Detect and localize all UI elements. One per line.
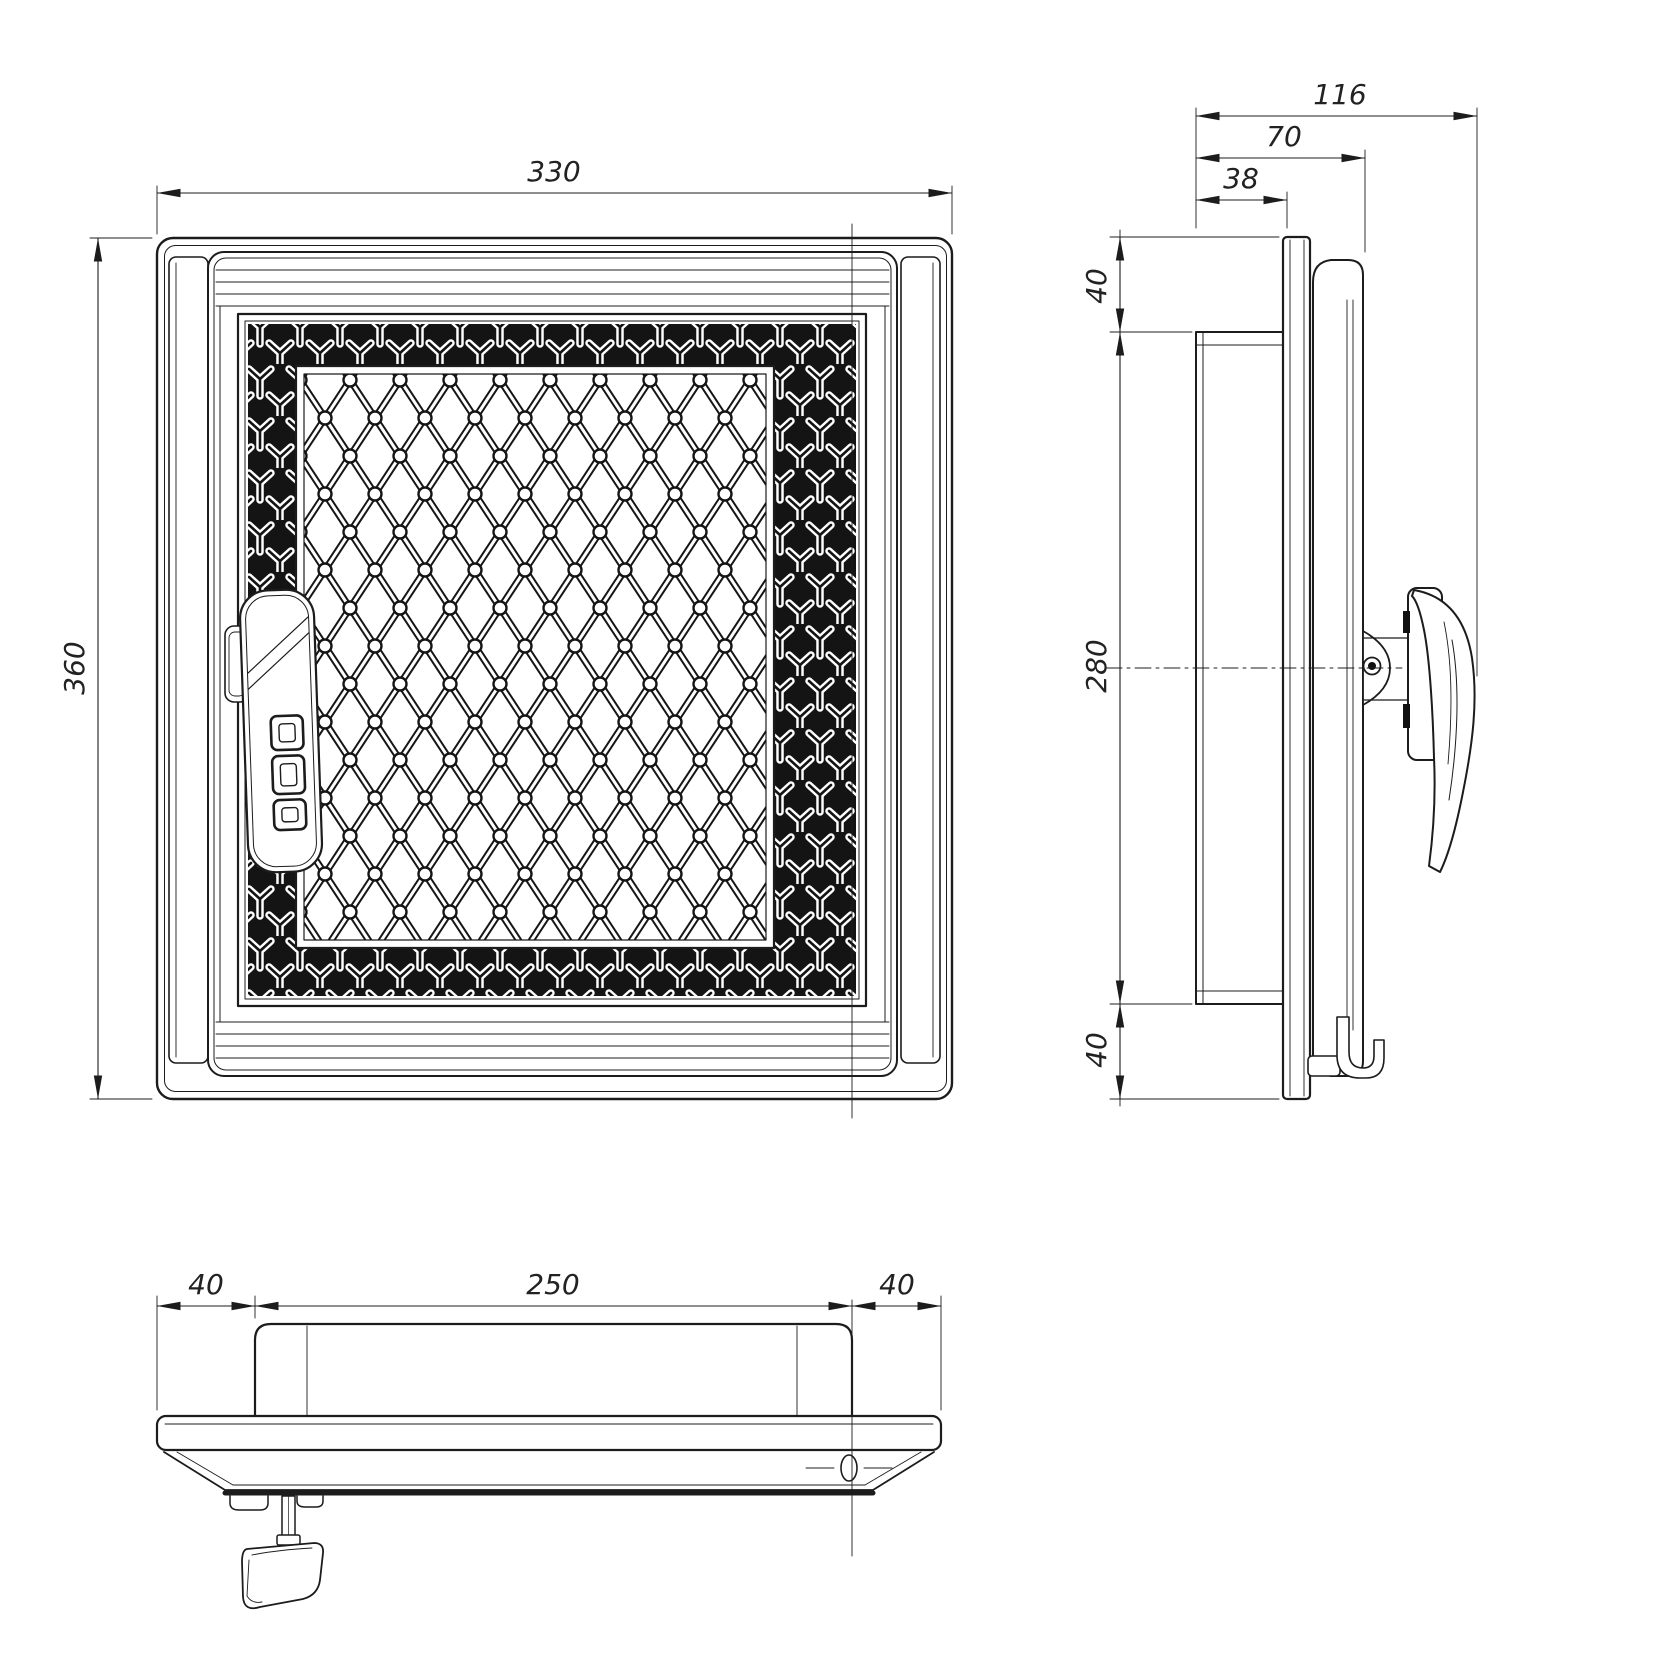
dim-side-total-depth-label: 116	[1313, 78, 1366, 111]
left-flange-strip	[169, 257, 208, 1063]
bottom-duct-box	[255, 1324, 852, 1416]
dim-side-door-depth: 70	[1196, 120, 1365, 252]
dim-side-door-depth-label: 70	[1266, 120, 1302, 153]
dim-bottom-chain: 40 250 40	[157, 1268, 941, 1410]
drawing-sheet: 330 360	[0, 0, 1680, 1680]
bottom-door-leaf	[164, 1452, 934, 1493]
dim-side-opening-height-label: 280	[1080, 639, 1113, 692]
dim-front-width: 330	[157, 155, 952, 234]
side-view: 116 70 38 40 280 40	[1080, 78, 1477, 1106]
side-handle	[1403, 588, 1475, 872]
lattice-panel	[304, 374, 766, 940]
bottom-front-plate	[157, 1416, 941, 1450]
side-clamp-bracket	[1308, 1017, 1384, 1078]
dim-bottom-opening-width-label: 250	[526, 1268, 579, 1301]
latch-feet	[230, 1496, 323, 1510]
dim-side-frame-depth: 38	[1196, 162, 1287, 228]
dim-side-frame-depth-label: 38	[1223, 162, 1259, 195]
dim-side-bottom-offset-label: 40	[1080, 1032, 1113, 1068]
dim-bottom-left-offset-label: 40	[188, 1268, 224, 1301]
technical-drawing: 330 360	[0, 0, 1680, 1680]
dim-front-width-label: 330	[527, 155, 580, 188]
dim-front-height-label: 360	[58, 641, 91, 694]
right-flange-strip	[901, 257, 940, 1063]
bottom-view: 40 250 40	[157, 1268, 941, 1608]
dim-side-top-offset-label: 40	[1080, 268, 1113, 304]
door-handle-front	[239, 589, 323, 873]
front-view: 330 360	[58, 155, 952, 1118]
dim-front-height: 360	[58, 238, 152, 1099]
handle-knob	[242, 1543, 323, 1608]
handle-stem	[277, 1496, 300, 1545]
dim-bottom-right-offset-label: 40	[879, 1268, 915, 1301]
